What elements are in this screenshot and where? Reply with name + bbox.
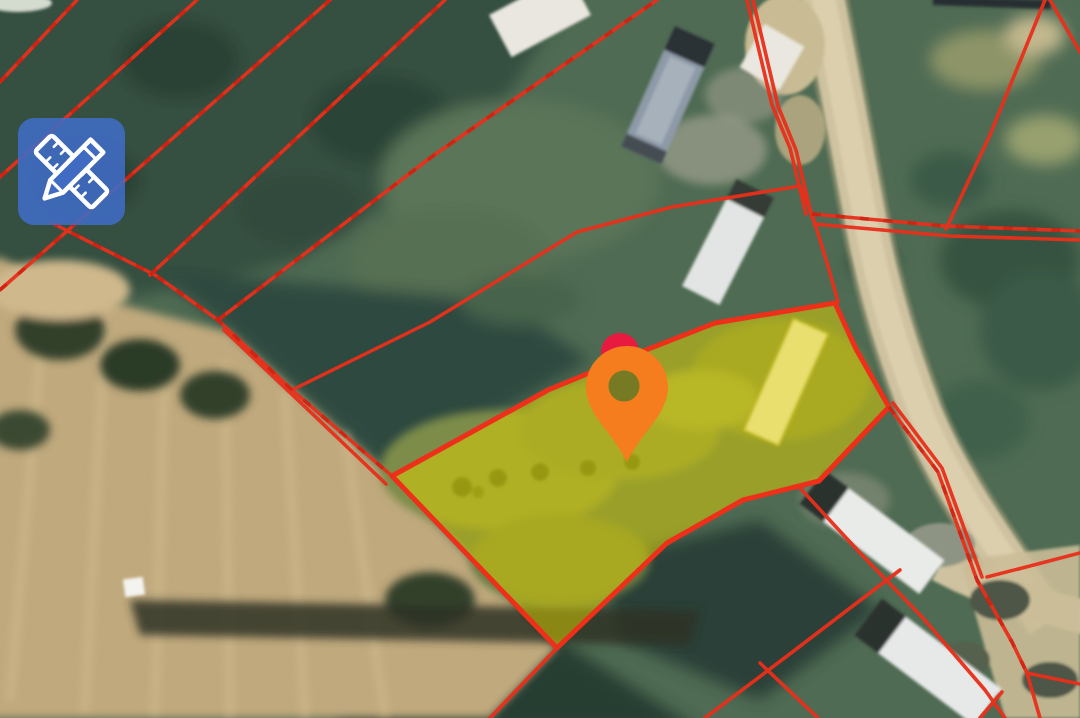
map-viewport (0, 0, 1080, 718)
pencil-ruler-icon (18, 118, 125, 225)
measure-tool-button[interactable] (18, 118, 125, 225)
small-shed (123, 577, 145, 598)
satellite-map[interactable] (0, 0, 1080, 718)
pin-hole (609, 371, 640, 402)
